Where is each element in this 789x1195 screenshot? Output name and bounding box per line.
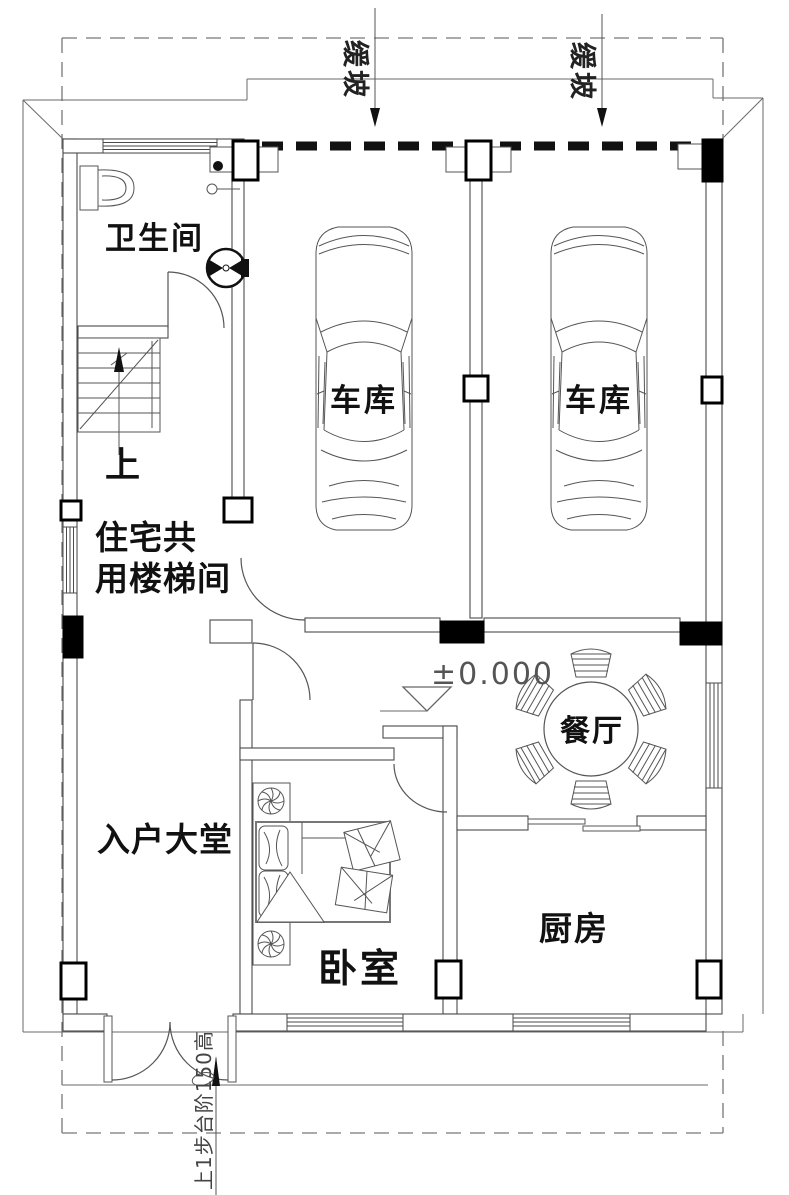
bedroom-door [394, 764, 447, 812]
entry-step-annotation: 上1步台阶150高 [191, 1030, 220, 1195]
staircase [78, 338, 160, 455]
down-arrow-icon [370, 108, 380, 127]
stair-direction-label: 上 [105, 446, 140, 486]
bed-group [253, 783, 400, 965]
kitchen-window [513, 1014, 630, 1031]
room-label-bedroom: 卧室 [318, 947, 402, 992]
hall-corridor-door [253, 643, 310, 700]
room-label-garage-left: 车库 [330, 383, 398, 419]
wall-dot [213, 161, 223, 171]
car-left [316, 227, 412, 530]
room-label-kitchen: 厨房 [539, 909, 609, 948]
toilet [80, 166, 134, 210]
bedroom-window [287, 1014, 403, 1031]
room-label-dining: 餐厅 [560, 714, 624, 749]
car-right [551, 227, 647, 530]
ramp-label-left: 缓坡 [339, 40, 370, 100]
room-label-stairwell-line2: 用楼梯间 [95, 559, 231, 598]
floor-plan-svg: 缓坡 缓坡 [0, 0, 789, 1195]
ramp-annotation-right: 缓坡 [566, 14, 607, 127]
corridor-garage-door [241, 558, 305, 620]
entry-step-note: 上1步台阶150高 [192, 1030, 216, 1190]
kitchen-sliding-door [528, 819, 640, 831]
down-arrow-icon [597, 108, 607, 127]
room-label-garage-right: 车库 [565, 383, 633, 419]
dining-window [706, 683, 722, 788]
floor-plan-drawing: 缓坡 缓坡 [0, 0, 789, 1195]
room-label-bathroom: 卫生间 [105, 221, 204, 257]
ramp-annotation-left: 缓坡 [339, 8, 380, 127]
room-label-entrance-hall: 入户大堂 [97, 820, 233, 859]
room-label-stairwell-line1: 住宅共 [95, 518, 197, 557]
bathroom-window [103, 139, 217, 153]
ramp-label-right: 缓坡 [566, 42, 597, 102]
stairwell-window [63, 527, 77, 593]
